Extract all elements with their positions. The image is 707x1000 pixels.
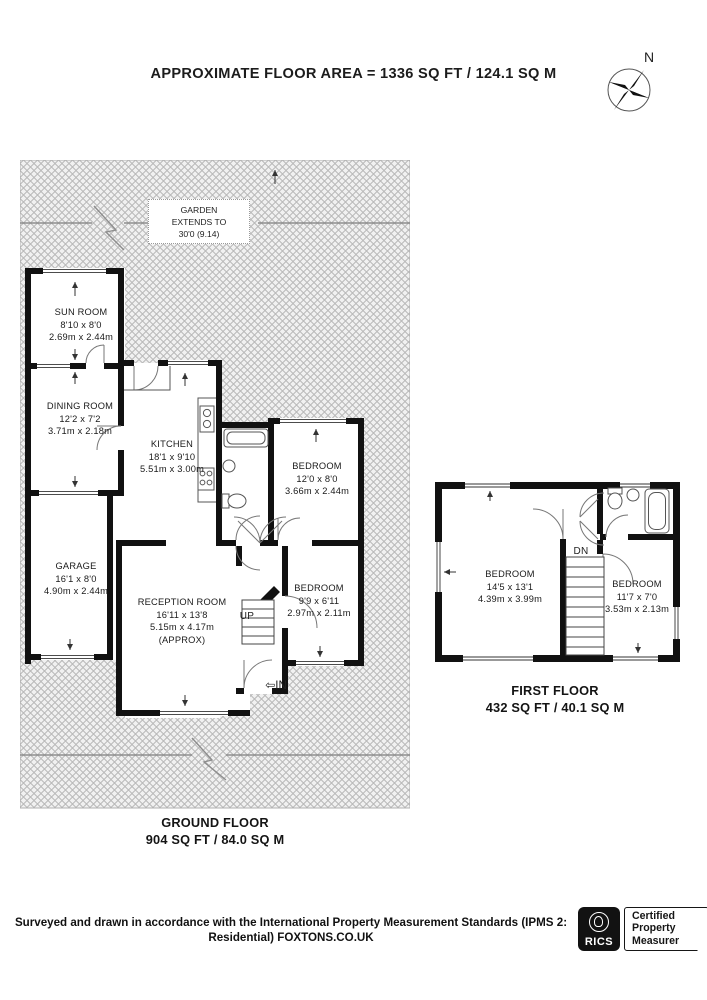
stairs-up-label: UP	[232, 611, 262, 622]
garden-note: GARDEN EXTENDS TO 30'0 (9.14)	[148, 199, 250, 244]
room-label-bedroom-2: BEDROOM 9'9 x 6'11 2.97m x 2.11m	[268, 582, 370, 620]
garden-note-line3: 30'0 (9.14)	[149, 228, 249, 240]
sink-symbol	[627, 489, 639, 501]
certified-property-measurer-box: Certified Property Measurer	[624, 907, 707, 951]
room-label-bedroom-4: BEDROOM 11'7 x 7'0 3.53m x 2.13m	[588, 578, 686, 616]
garden-note-line2: EXTENDS TO	[149, 216, 249, 228]
compass-star	[609, 70, 649, 110]
room-label-bedroom-3: BEDROOM 14'5 x 13'1 4.39m x 3.99m	[452, 568, 568, 606]
compass-icon: N	[596, 44, 672, 120]
room-label-kitchen: KITCHEN 18'1 x 9'10 5.51m x 3.00m	[118, 438, 226, 476]
room-label-garage: GARAGE 16'1 x 8'0 4.90m x 2.44m	[24, 560, 128, 598]
room-label-sun-room: SUN ROOM 8'10 x 8'0 2.69m x 2.44m	[28, 306, 134, 344]
room-label-bedroom-1: BEDROOM 12'0 x 8'0 3.66m x 2.44m	[266, 460, 368, 498]
rics-wordmark: RICS	[578, 936, 620, 948]
disclaimer-text: Surveyed and drawn in accordance with th…	[8, 916, 574, 946]
first-floor-caption: FIRST FLOOR 432 SQ FT / 40.1 SQ M	[430, 682, 680, 716]
entrance-label: ⇦IN	[246, 678, 306, 692]
rics-lion-icon	[589, 912, 609, 932]
floorplan-page: APPROXIMATE FLOOR AREA = 1336 SQ FT / 12…	[0, 0, 707, 1000]
room-label-reception-room: RECEPTION ROOM 16'11 x 13'8 5.15m x 4.17…	[118, 596, 246, 646]
garden-note-line1: GARDEN	[149, 204, 249, 216]
ground-floor-caption: GROUND FLOOR 904 SQ FT / 84.0 SQ M	[20, 814, 410, 848]
rics-badge: RICS Certified Property Measurer	[578, 907, 707, 951]
stairs-down-label: DN	[566, 546, 596, 557]
entrance-text: IN	[275, 680, 287, 692]
compass-north-label: N	[644, 49, 654, 65]
room-label-dining-room: DINING ROOM 12'2 x 7'2 3.71m x 2.18m	[26, 400, 134, 438]
entrance-arrow-icon: ⇦	[265, 678, 275, 692]
rics-logo: RICS	[578, 907, 620, 951]
